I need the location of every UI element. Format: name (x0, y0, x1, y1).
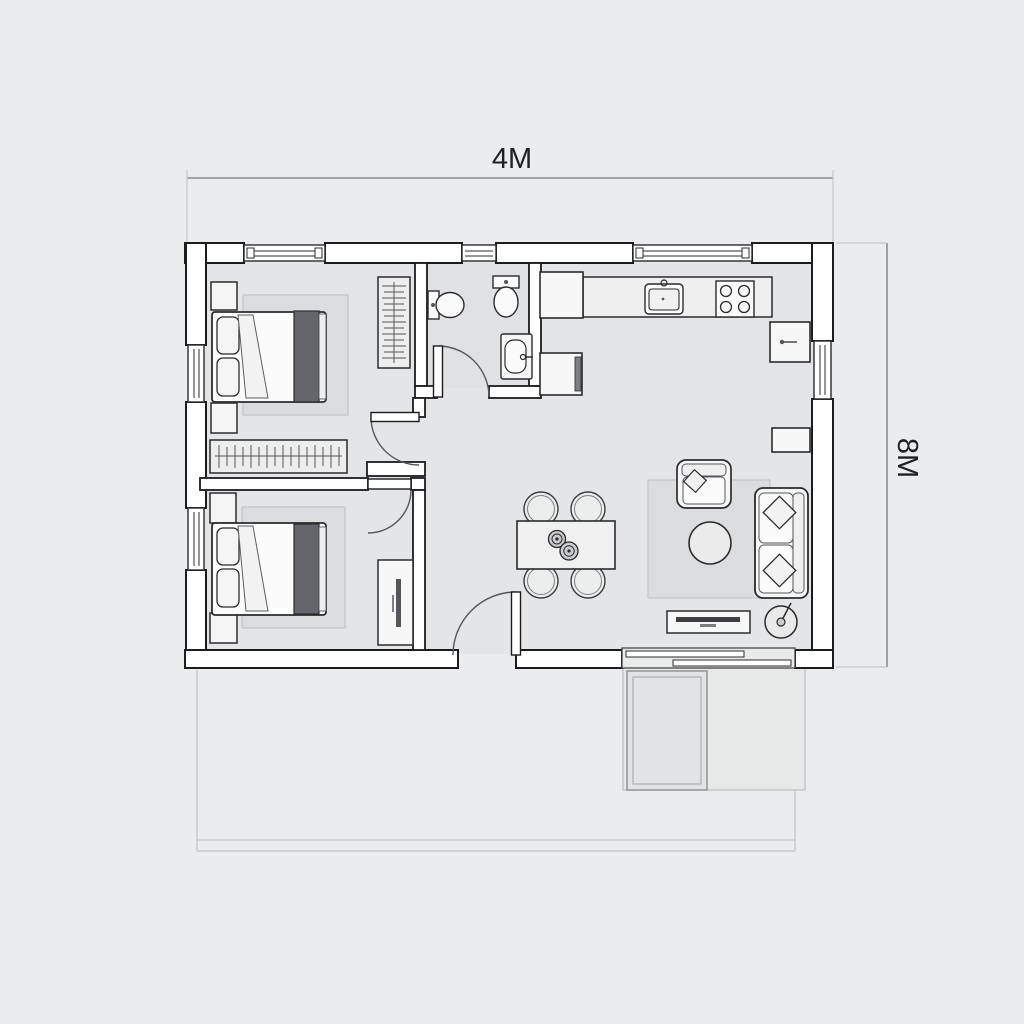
washbasin-icon (501, 334, 533, 379)
blanket (294, 524, 319, 614)
blanket (294, 311, 319, 402)
double-bed-icon-b1 (212, 311, 326, 402)
desk-icon (378, 560, 413, 645)
pillow-icon (217, 569, 239, 607)
monitor (396, 579, 401, 627)
dimension-top: 4M (187, 143, 833, 243)
sliding-door-icon (622, 648, 795, 668)
wall-top-3 (496, 243, 633, 263)
pillow-icon (217, 317, 239, 354)
wall-bottom-1 (185, 650, 458, 668)
coffee-table-icon (689, 522, 731, 564)
terrace-slab-icon (627, 671, 707, 790)
window-icon-bedroom1-top (244, 245, 325, 261)
wardrobe-rail-icon-b1 (210, 440, 347, 473)
wall-top-2 (325, 243, 462, 263)
bedroom2-north-wall-right (411, 478, 425, 490)
stove-burner-icon (716, 281, 754, 317)
wall-bottom-2 (516, 650, 622, 668)
window-icon-living-right (814, 341, 831, 399)
window-icon-kitchen-top (633, 245, 752, 261)
window-icon-hall-top (462, 245, 496, 261)
armchair-icon (677, 460, 731, 508)
nightstand-icon-b1-top (211, 282, 237, 310)
bathroom-west-wall (415, 263, 427, 386)
window-icon-bedroom2-left (188, 508, 204, 570)
tv-stand-icon (667, 611, 750, 633)
bedroom2-east-wall (413, 490, 425, 650)
kitchen-cabinet-right (770, 322, 810, 362)
wall-right-1 (812, 243, 833, 341)
nightstand-icon-b2-top (210, 493, 236, 523)
toilet-icon-left (428, 291, 464, 319)
closet-rail-icon-b1 (378, 277, 410, 368)
floor-plan-canvas: 4M 8M (0, 0, 1024, 1024)
terrace (623, 668, 805, 790)
window-icon-bedroom1-left (188, 345, 204, 402)
bathroom-south-wall-right (489, 386, 541, 398)
nightstand-icon-b1-bottom (211, 403, 237, 433)
sofa-icon (755, 488, 808, 598)
dimension-height-label: 8M (891, 438, 923, 478)
wall-bottom-3 (795, 650, 833, 668)
cabinet-icon-right-lower (772, 428, 810, 452)
wall-left-2 (186, 402, 206, 508)
wall-left-1 (186, 243, 206, 345)
toilet-icon-top (493, 276, 519, 317)
blanket-edge (319, 314, 326, 399)
dimension-width-label: 4M (492, 143, 532, 175)
nightstand-icon-b2-bottom (210, 613, 237, 643)
pillow-icon (217, 528, 239, 565)
oven-icon (540, 353, 582, 395)
kitchen-sink-icon (645, 280, 683, 314)
bedroom2-north-wall-left (200, 478, 368, 490)
pillow-icon (217, 358, 239, 396)
bedroom1-south-wall (367, 462, 425, 476)
double-bed-icon-b2 (212, 523, 326, 615)
fridge-icon (540, 272, 583, 318)
wall-right-2 (812, 399, 833, 652)
dimension-right: 8M (836, 243, 923, 667)
blanket-edge (319, 527, 326, 611)
floor-plan-page: 4M 8M (0, 0, 1024, 1024)
